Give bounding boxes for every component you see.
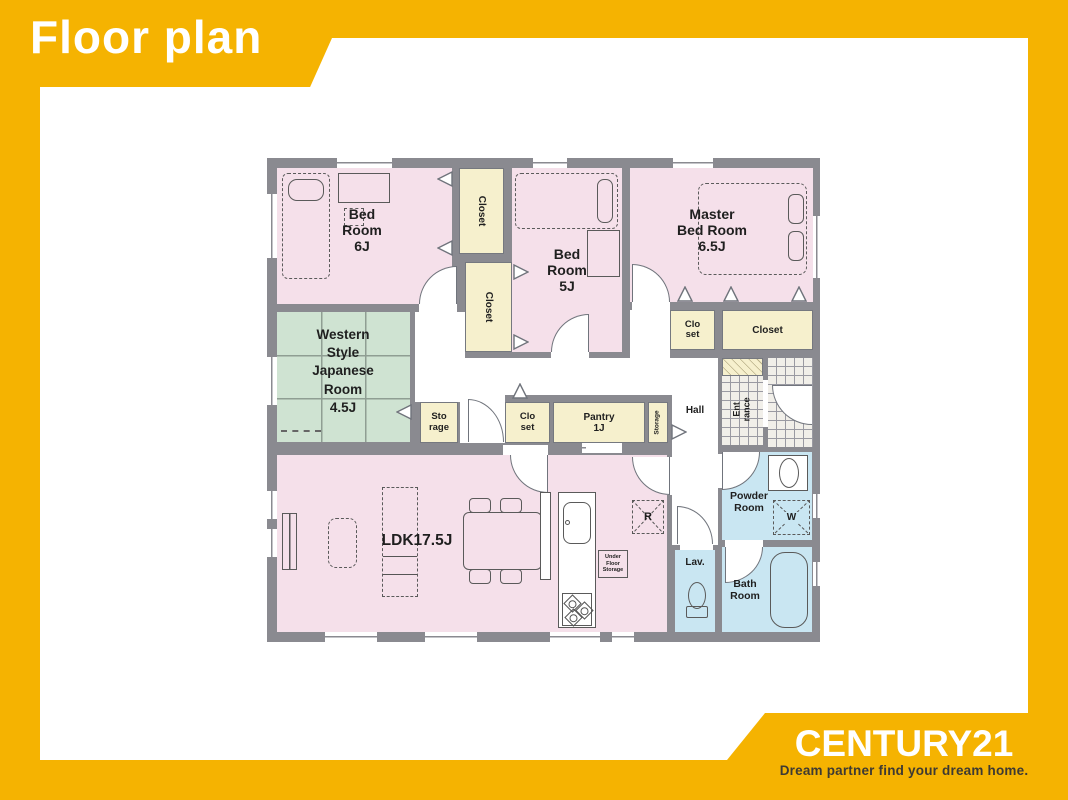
pillow	[597, 179, 613, 223]
chair	[500, 498, 522, 513]
hall-closet: Clo set	[505, 402, 550, 443]
toilet-bowl	[688, 582, 706, 609]
floor-plan: Clo set Closet Sto rage Clo set	[267, 158, 820, 642]
window	[267, 491, 277, 519]
pillow	[788, 194, 804, 224]
door-opening	[551, 352, 589, 358]
label-ldk: LDK17.5J	[375, 532, 459, 550]
washer-label: W	[785, 512, 798, 523]
kitchen-counter-side	[540, 492, 551, 580]
tatami-edge-dashes	[281, 430, 321, 432]
closet-label: set	[686, 330, 700, 340]
closet-label: Closet	[752, 325, 783, 336]
door-opening	[725, 540, 763, 547]
sliding-door-marker	[437, 240, 453, 256]
window	[267, 529, 277, 557]
closet-label: set	[521, 423, 535, 433]
window	[267, 357, 277, 405]
sliding-door-marker	[723, 286, 739, 302]
window	[325, 632, 377, 642]
window	[425, 632, 477, 642]
entrance-door-opening	[763, 380, 768, 427]
window	[813, 562, 820, 586]
hall-master-door-nook	[630, 310, 670, 358]
pantry-label: Pantry	[583, 412, 614, 423]
ufs-label: Storage	[603, 567, 623, 574]
refrigerator-label: R	[644, 511, 652, 523]
door-opening	[632, 302, 670, 310]
sliding-door-marker	[791, 286, 807, 302]
sliding-door-marker	[677, 286, 693, 302]
label-japanese-room: WesternStyleJapaneseRoom4.5J	[291, 326, 395, 417]
label-bedroom-6j: BedRoom6J	[310, 206, 414, 254]
label-lavatory: Lav.	[675, 557, 715, 569]
storage-box: Sto rage	[420, 402, 458, 443]
sliding-door-marker	[512, 383, 528, 399]
chair	[469, 498, 491, 513]
tv-board	[282, 513, 297, 570]
closet-label: Clo	[520, 412, 535, 422]
storage-label: Sto	[431, 412, 446, 422]
window	[337, 158, 392, 168]
washing-machine: W	[773, 500, 810, 535]
label-bedroom-5j: BedRoom5J	[515, 246, 619, 294]
pillow	[788, 231, 804, 261]
pillow	[288, 179, 324, 201]
powder-sink-bowl	[779, 458, 799, 488]
window	[550, 632, 600, 642]
window	[813, 216, 820, 278]
faucet	[565, 520, 570, 525]
toilet-tank	[686, 606, 708, 618]
closet-master: Closet	[722, 310, 813, 350]
label-hall: Hall	[675, 405, 715, 417]
label-closet-top: Closet	[475, 181, 487, 241]
entrance-step	[722, 358, 763, 376]
desk	[338, 173, 390, 203]
label-powder-room: PowderRoom	[720, 490, 778, 514]
sliding-door-marker	[396, 404, 412, 420]
window	[612, 632, 634, 642]
ufs-label: Under	[605, 554, 621, 561]
brand-tagline: Dream partner find your dream home.	[767, 763, 1041, 778]
sliding-door-marker	[671, 424, 687, 440]
brand-banner: CENTURY21 Dream partner find your dream …	[727, 713, 1068, 800]
storage-label: rage	[429, 423, 449, 433]
bathtub	[770, 552, 808, 628]
door-opening	[419, 304, 457, 312]
under-floor-storage: Under Floor Storage	[598, 550, 628, 578]
sliding-door-marker	[437, 171, 453, 187]
chair	[500, 569, 522, 584]
closet-master-small: Clo set	[670, 310, 715, 350]
window	[267, 194, 277, 258]
pantry: Pantry 1J	[553, 402, 645, 443]
brand-logo-text: CENTURY21	[769, 723, 1039, 765]
refrigerator: R	[632, 500, 664, 534]
ufs-label: Floor	[606, 561, 620, 568]
chair	[469, 569, 491, 584]
door-opening	[503, 445, 548, 455]
window	[673, 158, 713, 168]
sliding-door-marker	[513, 334, 529, 350]
pantry-sliding-door	[582, 443, 622, 453]
dining-table	[463, 512, 542, 570]
label-entrance: Ent rance	[732, 391, 753, 427]
flyer-page: Floor plan CENTURY21 Dream partner find …	[0, 0, 1068, 800]
label-bath-room: BathRoom	[716, 578, 774, 602]
label-master-bedroom: MasterBed Room6.5J	[650, 206, 774, 254]
window	[533, 158, 567, 168]
label-closet-bottom: Closet	[482, 277, 494, 337]
label-storage-small: Storage	[654, 403, 663, 443]
pantry-label: 1J	[593, 423, 604, 434]
page-title: Floor plan	[30, 10, 262, 64]
door-opening	[680, 544, 713, 550]
coffee-table	[328, 518, 357, 568]
window	[813, 494, 820, 518]
